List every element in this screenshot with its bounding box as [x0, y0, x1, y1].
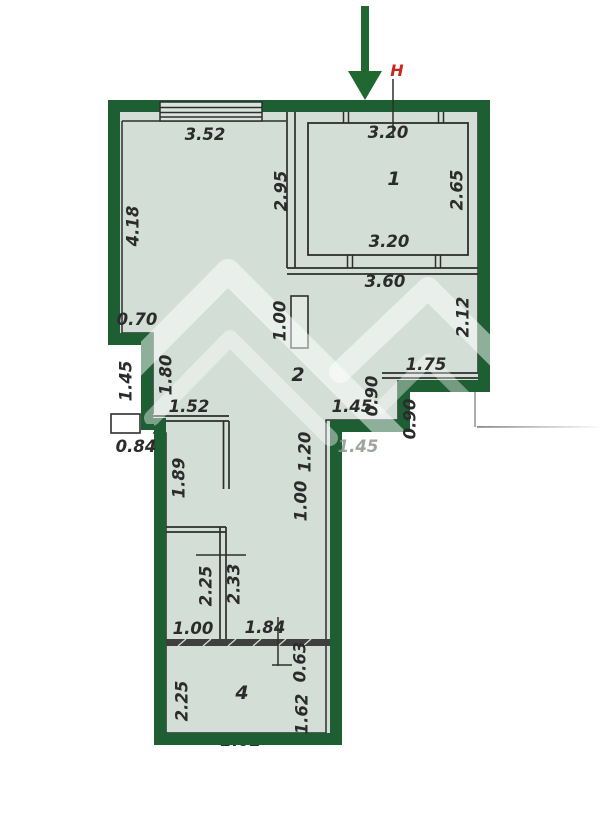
svg-text:1.52: 1.52: [169, 397, 210, 416]
svg-text:3.60: 3.60: [365, 272, 406, 291]
svg-text:1.84: 1.84: [245, 618, 286, 637]
svg-text:1.20: 1.20: [296, 432, 315, 473]
svg-text:1.45: 1.45: [117, 361, 136, 402]
svg-text:2.25: 2.25: [173, 681, 192, 722]
svg-text:1.62: 1.62: [293, 694, 312, 735]
room-number: 4: [234, 682, 248, 704]
svg-text:1.80: 1.80: [157, 355, 176, 396]
svg-text:0.90: 0.90: [401, 399, 420, 440]
svg-text:0.63: 0.63: [291, 642, 310, 683]
svg-text:1.75: 1.75: [406, 355, 447, 374]
entrance-arrow-icon: [348, 6, 382, 100]
svg-text:1.00: 1.00: [173, 619, 214, 638]
svg-text:1.89: 1.89: [170, 458, 189, 499]
door-icon: [111, 414, 140, 433]
room-number: 1: [387, 168, 400, 190]
svg-text:2.12: 2.12: [454, 297, 473, 338]
room-number: 2: [291, 364, 304, 386]
svg-text:4.18: 4.18: [124, 206, 143, 248]
svg-text:3.20: 3.20: [368, 123, 409, 142]
svg-text:0.84: 0.84: [116, 437, 157, 456]
svg-text:1.00: 1.00: [271, 301, 290, 342]
svg-text:1.45: 1.45: [338, 437, 379, 456]
svg-text:2.25: 2.25: [197, 566, 216, 607]
window-icon: [160, 102, 262, 121]
entrance-marker-label: Н: [390, 61, 404, 80]
svg-text:2.95: 2.95: [272, 171, 291, 212]
svg-text:3.20: 3.20: [369, 232, 410, 251]
floor-plan-svg: 2.02 Н 1 2 4 3.52 3.20 3.20 3.60 0.70 1.: [0, 0, 608, 813]
svg-text:2.65: 2.65: [448, 170, 467, 211]
svg-text:0.90: 0.90: [363, 376, 382, 417]
svg-text:0.70: 0.70: [117, 310, 158, 329]
floor-plan-page: 2.02 Н 1 2 4 3.52 3.20 3.20 3.60 0.70 1.: [0, 0, 608, 813]
svg-text:2.33: 2.33: [225, 564, 244, 605]
adjacent-unit-lines: [475, 392, 603, 428]
svg-text:1.00: 1.00: [292, 481, 311, 522]
svg-text:3.52: 3.52: [185, 125, 226, 144]
